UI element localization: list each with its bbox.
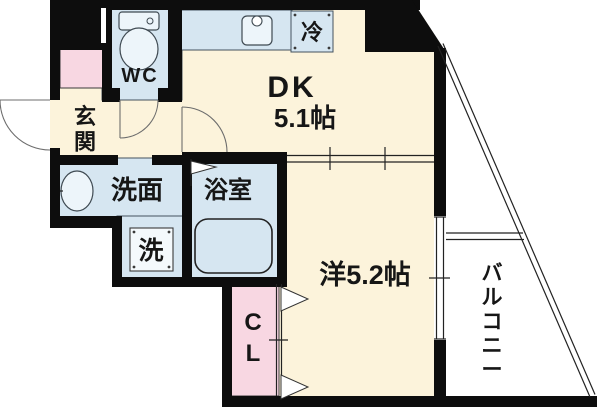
fridge-label: 冷 [301, 20, 323, 45]
dk-size-label: 5.1帖 [274, 103, 336, 133]
wc-label: WC [121, 65, 158, 87]
wall-notch [101, 8, 106, 43]
faucet-icon [252, 16, 262, 26]
toilet-bowl-icon [120, 28, 158, 70]
bathroom-label: 浴室 [204, 176, 252, 204]
kitchen-counter [176, 10, 292, 50]
entrance-label: 玄関 [74, 104, 96, 154]
room-bathroom [187, 157, 282, 282]
room-closet [227, 282, 279, 396]
floorplan-page: DK 5.1帖 洋5.2帖 WC 玄関 洗面 浴室 洗 冷 CL バルコニー [0, 0, 600, 407]
balcony-label: バルコニー [482, 262, 503, 382]
western-room-label: 洋5.2帖 [319, 259, 411, 290]
washbasin-icon [61, 171, 93, 211]
shoe-cabinet [60, 48, 104, 88]
dk-label: DK [267, 71, 316, 104]
washroom-label: 洗面 [111, 175, 163, 205]
floorplan-svg: DK 5.1帖 洋5.2帖 WC 玄関 洗面 浴室 洗 冷 CL バルコニー [0, 0, 600, 407]
washer-label: 洗 [138, 237, 163, 265]
